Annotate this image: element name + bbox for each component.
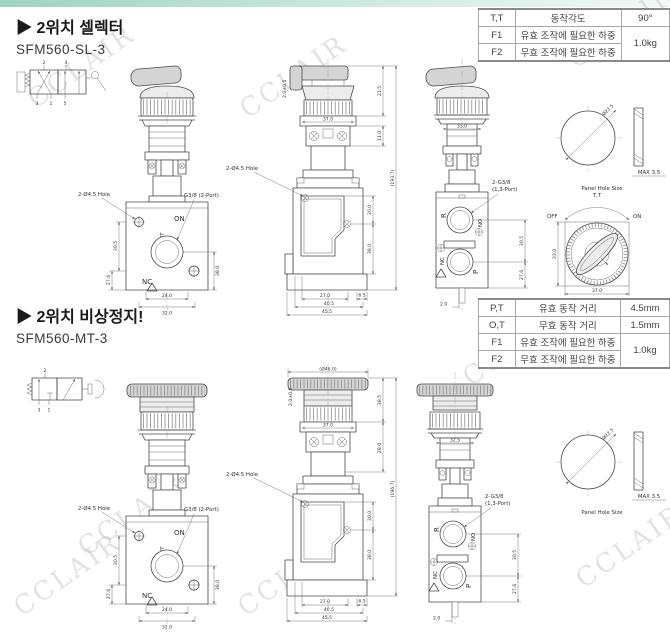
knob-rotation-top-view: T,T OFF ON 33.0 37.0	[545, 188, 650, 300]
dim-label: 27.6	[519, 270, 525, 280]
selector-lever-side	[296, 66, 348, 80]
dim-label: 21.5	[377, 86, 383, 96]
dim-label: 38.0	[215, 266, 221, 276]
port-size-callout: (1,3-Port)	[492, 187, 517, 193]
spec-desc: 유효 조작에 필요한 하중	[515, 334, 620, 351]
dim-label-overall: (193.7)	[390, 169, 396, 186]
dim-label: 27.6	[106, 275, 112, 285]
dim-label: 30.0	[367, 205, 373, 215]
section1-model: SFM560-SL-3	[16, 42, 106, 57]
valve-body-side: 2-Ø4.5 Hole 30.0 38.0 27.0 6.5 40.5 45.5	[226, 165, 376, 316]
dim-label: 38.5	[377, 395, 383, 405]
back-view-emergency-drawing: 32.5	[405, 372, 545, 627]
dim-label: 6.5	[358, 293, 365, 299]
spec-code: P,T	[479, 299, 516, 317]
dim-label: 40.5	[324, 301, 334, 307]
rotation-on-label: ON	[633, 214, 641, 220]
port-number: 3	[38, 408, 41, 414]
dim-label: 30.5	[113, 241, 119, 251]
dim-label-diameter: Ø22.5	[601, 103, 616, 118]
spec-code: F1	[479, 334, 516, 351]
rotation-off-label: OFF	[547, 214, 557, 220]
spec-value: 4.5mm	[620, 299, 669, 317]
spec-code: T,T	[479, 9, 516, 27]
dim-label: 38.0	[367, 244, 373, 254]
hole-callout: 2-Ø4.5 Hole	[226, 165, 259, 172]
dim-label: 33.0	[552, 249, 558, 259]
panel-hole-group: Ø22.5 MAX 3.5 Panel Hole Size	[556, 103, 666, 192]
port-number: 2	[43, 60, 46, 66]
catalog-page: CCLAIR CCLAIR CCLAIR CCLAIR CCLAIR CCLAI…	[0, 0, 670, 634]
table-row: O,T 무효 동작 거리 1.5mm	[479, 317, 670, 334]
table-row: T,T 동작각도 90°	[479, 9, 670, 27]
spec-value: 1.5mm	[620, 317, 669, 334]
port-number: 1	[50, 101, 53, 107]
spec-code: F1	[479, 27, 516, 44]
dim-label: 37.0	[323, 117, 333, 123]
table-row: P,T 유효 동작 거리 4.5mm	[479, 299, 670, 317]
dim-label-overall: (196.7)	[390, 480, 396, 497]
spec-value: 1.0kg	[620, 334, 669, 369]
port-number: 5	[64, 101, 67, 107]
spec-desc: 유효 조작에 필요한 하중	[515, 27, 621, 44]
front-view-emergency-drawing	[78, 372, 233, 630]
valve-body-front: ON OUT NC 2-Ø4.5 Hole G3/8 (2-Port) 30.5…	[78, 191, 221, 317]
valve-body-back: R NO NC P 2.0 30.5 27.6 2-G3/8 (1,3-Port…	[436, 180, 528, 309]
dim-label: 24.0	[162, 293, 172, 299]
front-view-selector-drawing: ON OUT NC 2-Ø4.5 Hole G3/8 (2-Port) 30.5…	[78, 58, 233, 316]
port-number: 1	[48, 408, 51, 414]
spec-desc: 무효 동작 거리	[515, 317, 620, 334]
spec-table-selector: T,T 동작각도 90° F1 유효 조작에 필요한 하중 1.0kg F2 무…	[478, 8, 670, 62]
port-nc-label: NC	[440, 257, 446, 265]
port-number: 3	[36, 101, 39, 107]
spec-desc: 무효 조작에 필요한 하중	[515, 351, 620, 369]
spec-desc: 동작각도	[515, 9, 621, 27]
dim-label: 37.0	[592, 288, 602, 294]
rotation-tt-label: T,T	[592, 193, 602, 199]
dim-label: 32.5	[450, 438, 460, 444]
selector-lever	[426, 66, 476, 86]
port-p-label: P	[472, 270, 480, 274]
section2-model: SFM560-MT-3	[16, 331, 108, 346]
port-number: 2	[44, 368, 47, 374]
port-r-label: R	[440, 213, 448, 218]
spec-value: 90°	[621, 9, 669, 27]
hole-callout: 2-Ø4.5 Hole	[78, 191, 111, 198]
side-view-emergency-drawing: (Ø46.0) 2.0±0.5 38.5 28.0 (196.7)	[226, 364, 403, 626]
spec-code: F2	[479, 351, 516, 369]
selector-lever	[131, 66, 181, 86]
knob-dim-label: 2.0±0.5	[282, 79, 288, 98]
dim-label: 2.0	[440, 302, 447, 308]
dim-label: 45.5	[322, 309, 332, 315]
dim-label: 27.0	[320, 293, 330, 299]
port-on-label: ON	[174, 215, 185, 223]
dim-label: 28.0	[377, 443, 383, 453]
section1-title: ▶ 2위치 셀렉터	[16, 14, 123, 38]
dim-label: 11.0	[377, 131, 383, 141]
selector-lever-grip	[290, 66, 302, 90]
spec-desc: 유효 동작 거리	[515, 299, 620, 317]
port-size-callout: G3/8 (2-Port)	[184, 193, 219, 199]
spec-code: O,T	[479, 317, 516, 334]
page-top-accent-bar	[0, 0, 670, 7]
port-number: 4	[65, 60, 68, 66]
dim-label: 30.5	[519, 236, 525, 246]
spec-value: 1.0kg	[621, 27, 669, 62]
port-size-callout: 2-G3/8	[492, 180, 511, 186]
table-row: F1 유효 조작에 필요한 하중 1.0kg	[479, 334, 670, 351]
back-view-selector-drawing: R NO NC P 2.0 30.5 27.6 2-G3/8 (1,3-Port…	[412, 58, 552, 313]
table-row: F1 유효 조작에 필요한 하중 1.0kg	[479, 27, 670, 44]
knob-dim-label: 2.0±0.5	[288, 387, 294, 406]
panel-hole-size-drawing	[552, 424, 670, 520]
dim-label: 33.0	[457, 124, 467, 130]
panel-thickness-label: MAX 3.5	[638, 170, 660, 176]
side-view-selector-drawing: 2.0±0.5 37.0	[226, 58, 403, 320]
dim-label: 32.0	[162, 311, 172, 317]
spec-table-emergency: P,T 유효 동작 거리 4.5mm O,T 무효 동작 거리 1.5mm F1…	[478, 298, 670, 369]
panel-hole-size-drawing: Ø22.5 MAX 3.5 Panel Hole Size	[552, 100, 670, 196]
section2-title: ▶ 2위치 비상정지!	[16, 303, 143, 327]
